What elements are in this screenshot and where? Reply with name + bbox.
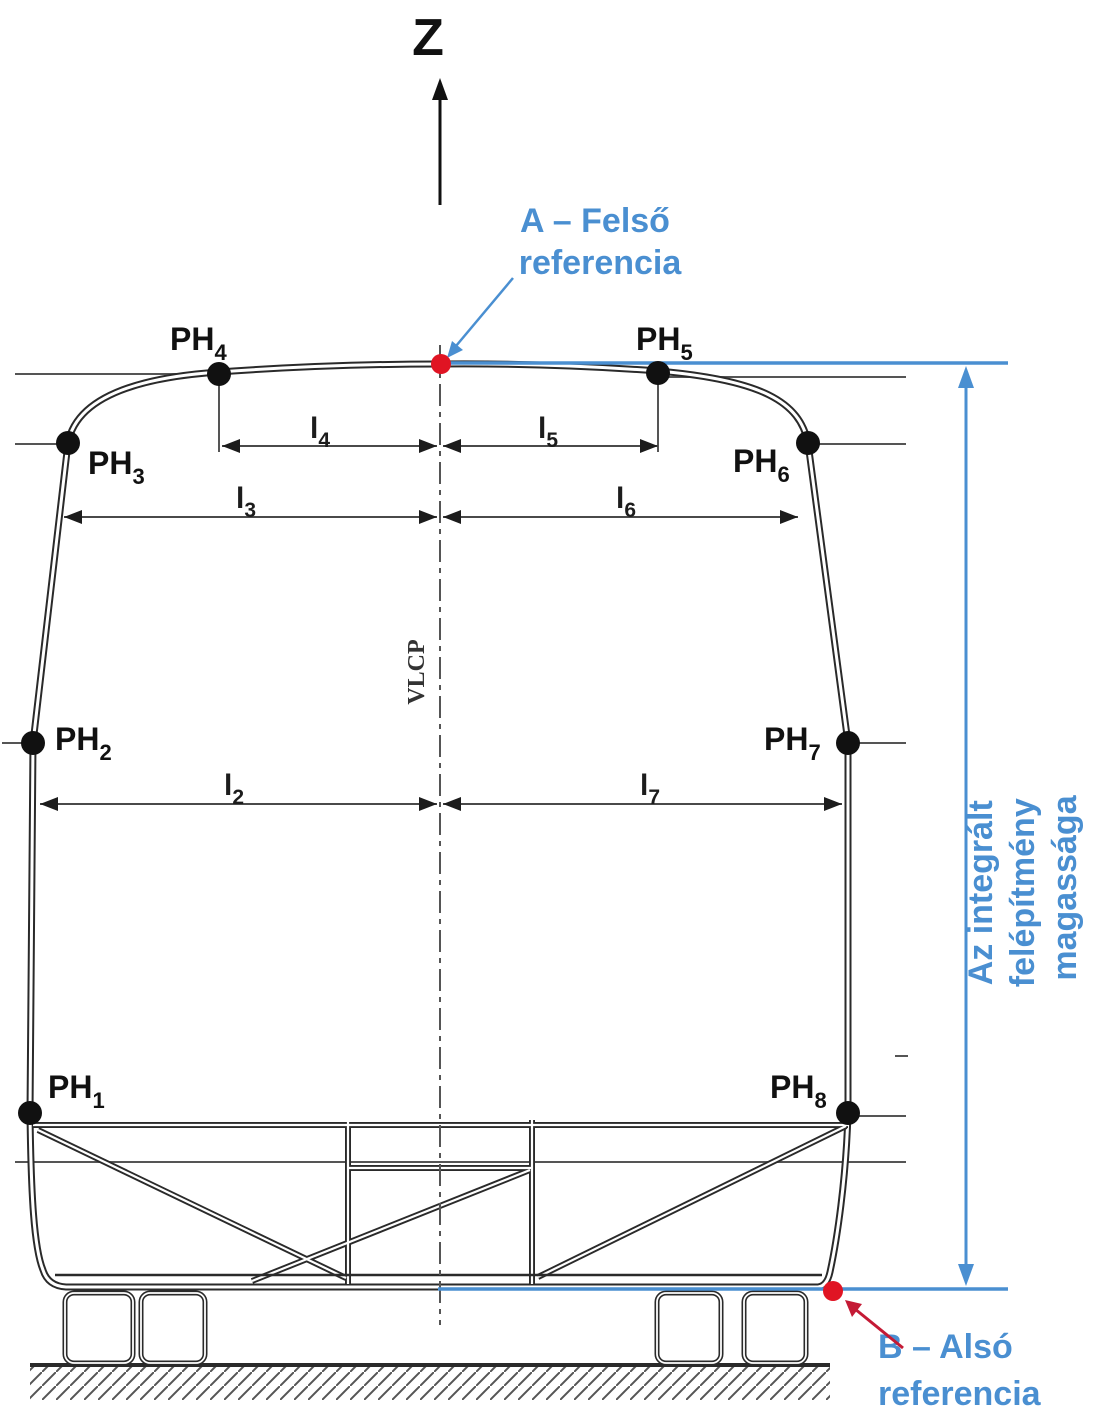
label-ph5: PH5 <box>636 321 693 365</box>
arrow-l2-left <box>40 797 58 811</box>
label-ph1: PH1 <box>48 1069 105 1113</box>
upper-reference-arrow-line <box>456 278 513 346</box>
arrow-l7-right <box>824 797 842 811</box>
support-block-4-inner <box>744 1293 806 1363</box>
pivot-point-ph4 <box>207 362 231 386</box>
pivot-point-ph5 <box>646 361 670 385</box>
truss-diagonal-left-inner <box>38 1130 346 1278</box>
label-ph6: PH6 <box>733 443 790 487</box>
diagram-canvas: VLCP l4 l5 l3 l6 l2 l7 Z <box>0 0 1120 1428</box>
support-block-3 <box>657 1293 721 1363</box>
arrow-l6-right <box>780 510 798 524</box>
height-label: Az integrált felépítmény magassága <box>962 789 1084 987</box>
arrow-l7-left <box>443 797 461 811</box>
truss-diagonal-right-inner <box>538 1126 846 1277</box>
support-block-1-inner <box>65 1293 133 1363</box>
height-arrow-down <box>958 1264 974 1286</box>
upper-reference-label-line1: A – Felső <box>520 202 670 240</box>
upper-reference-label-line2: referencia <box>519 244 683 282</box>
z-axis-arrowhead <box>432 78 448 100</box>
support-block-1 <box>65 1293 133 1363</box>
arrow-l5-right <box>640 439 658 453</box>
dimension-labels: l4 l5 l3 l6 l2 l7 <box>224 412 660 809</box>
bus-superstructure-diagram: VLCP l4 l5 l3 l6 l2 l7 Z <box>0 0 1120 1428</box>
ground <box>30 1365 830 1400</box>
arrow-l4-left <box>222 439 240 453</box>
support-blocks <box>65 1293 806 1363</box>
z-axis-label: Z <box>412 9 444 67</box>
pivot-point-ph8 <box>836 1101 860 1125</box>
pivot-point-ph7 <box>836 731 860 755</box>
support-block-4 <box>744 1293 806 1363</box>
arrow-l2-right <box>419 797 437 811</box>
arrow-l6-left <box>443 510 461 524</box>
support-block-2 <box>141 1293 205 1363</box>
pivot-point-ph2 <box>21 731 45 755</box>
arrow-l5-left <box>443 439 461 453</box>
label-ph4: PH4 <box>170 321 227 365</box>
truss-diagonal-middle-inner <box>252 1170 530 1281</box>
lower-reference-point-marker <box>823 1281 843 1301</box>
support-block-3-inner <box>657 1293 721 1363</box>
reference-construction <box>438 363 1008 1289</box>
ground-hatching <box>30 1367 830 1400</box>
arrow-l4-right <box>419 439 437 453</box>
centerline-label: VLCP <box>404 639 430 704</box>
label-ph8: PH8 <box>770 1069 827 1113</box>
label-ph2: PH2 <box>55 721 112 765</box>
label-ph7: PH7 <box>764 721 821 765</box>
lower-reference-label-line1: B – Alsó <box>878 1328 1013 1366</box>
support-block-2-inner <box>141 1293 205 1363</box>
height-arrow-up <box>958 366 974 388</box>
pivot-point-ph3 <box>56 431 80 455</box>
lower-reference-label-line2: referencia <box>878 1375 1042 1413</box>
arrow-l3-right <box>419 510 437 524</box>
pivot-point-ph6 <box>796 431 820 455</box>
label-ph3: PH3 <box>88 445 145 489</box>
extension-lines <box>2 374 908 1162</box>
lower-reference-annotation: B – Alsó referencia <box>845 1300 1042 1413</box>
arrow-l3-left <box>64 510 82 524</box>
z-axis: Z <box>412 9 448 205</box>
pivot-point-labels: PH1 PH2 PH3 PH4 PH5 PH6 PH7 PH8 <box>48 321 827 1113</box>
upper-reference-arrowhead <box>447 341 463 358</box>
pivot-point-ph1 <box>18 1101 42 1125</box>
upper-reference-point-marker <box>431 354 451 374</box>
